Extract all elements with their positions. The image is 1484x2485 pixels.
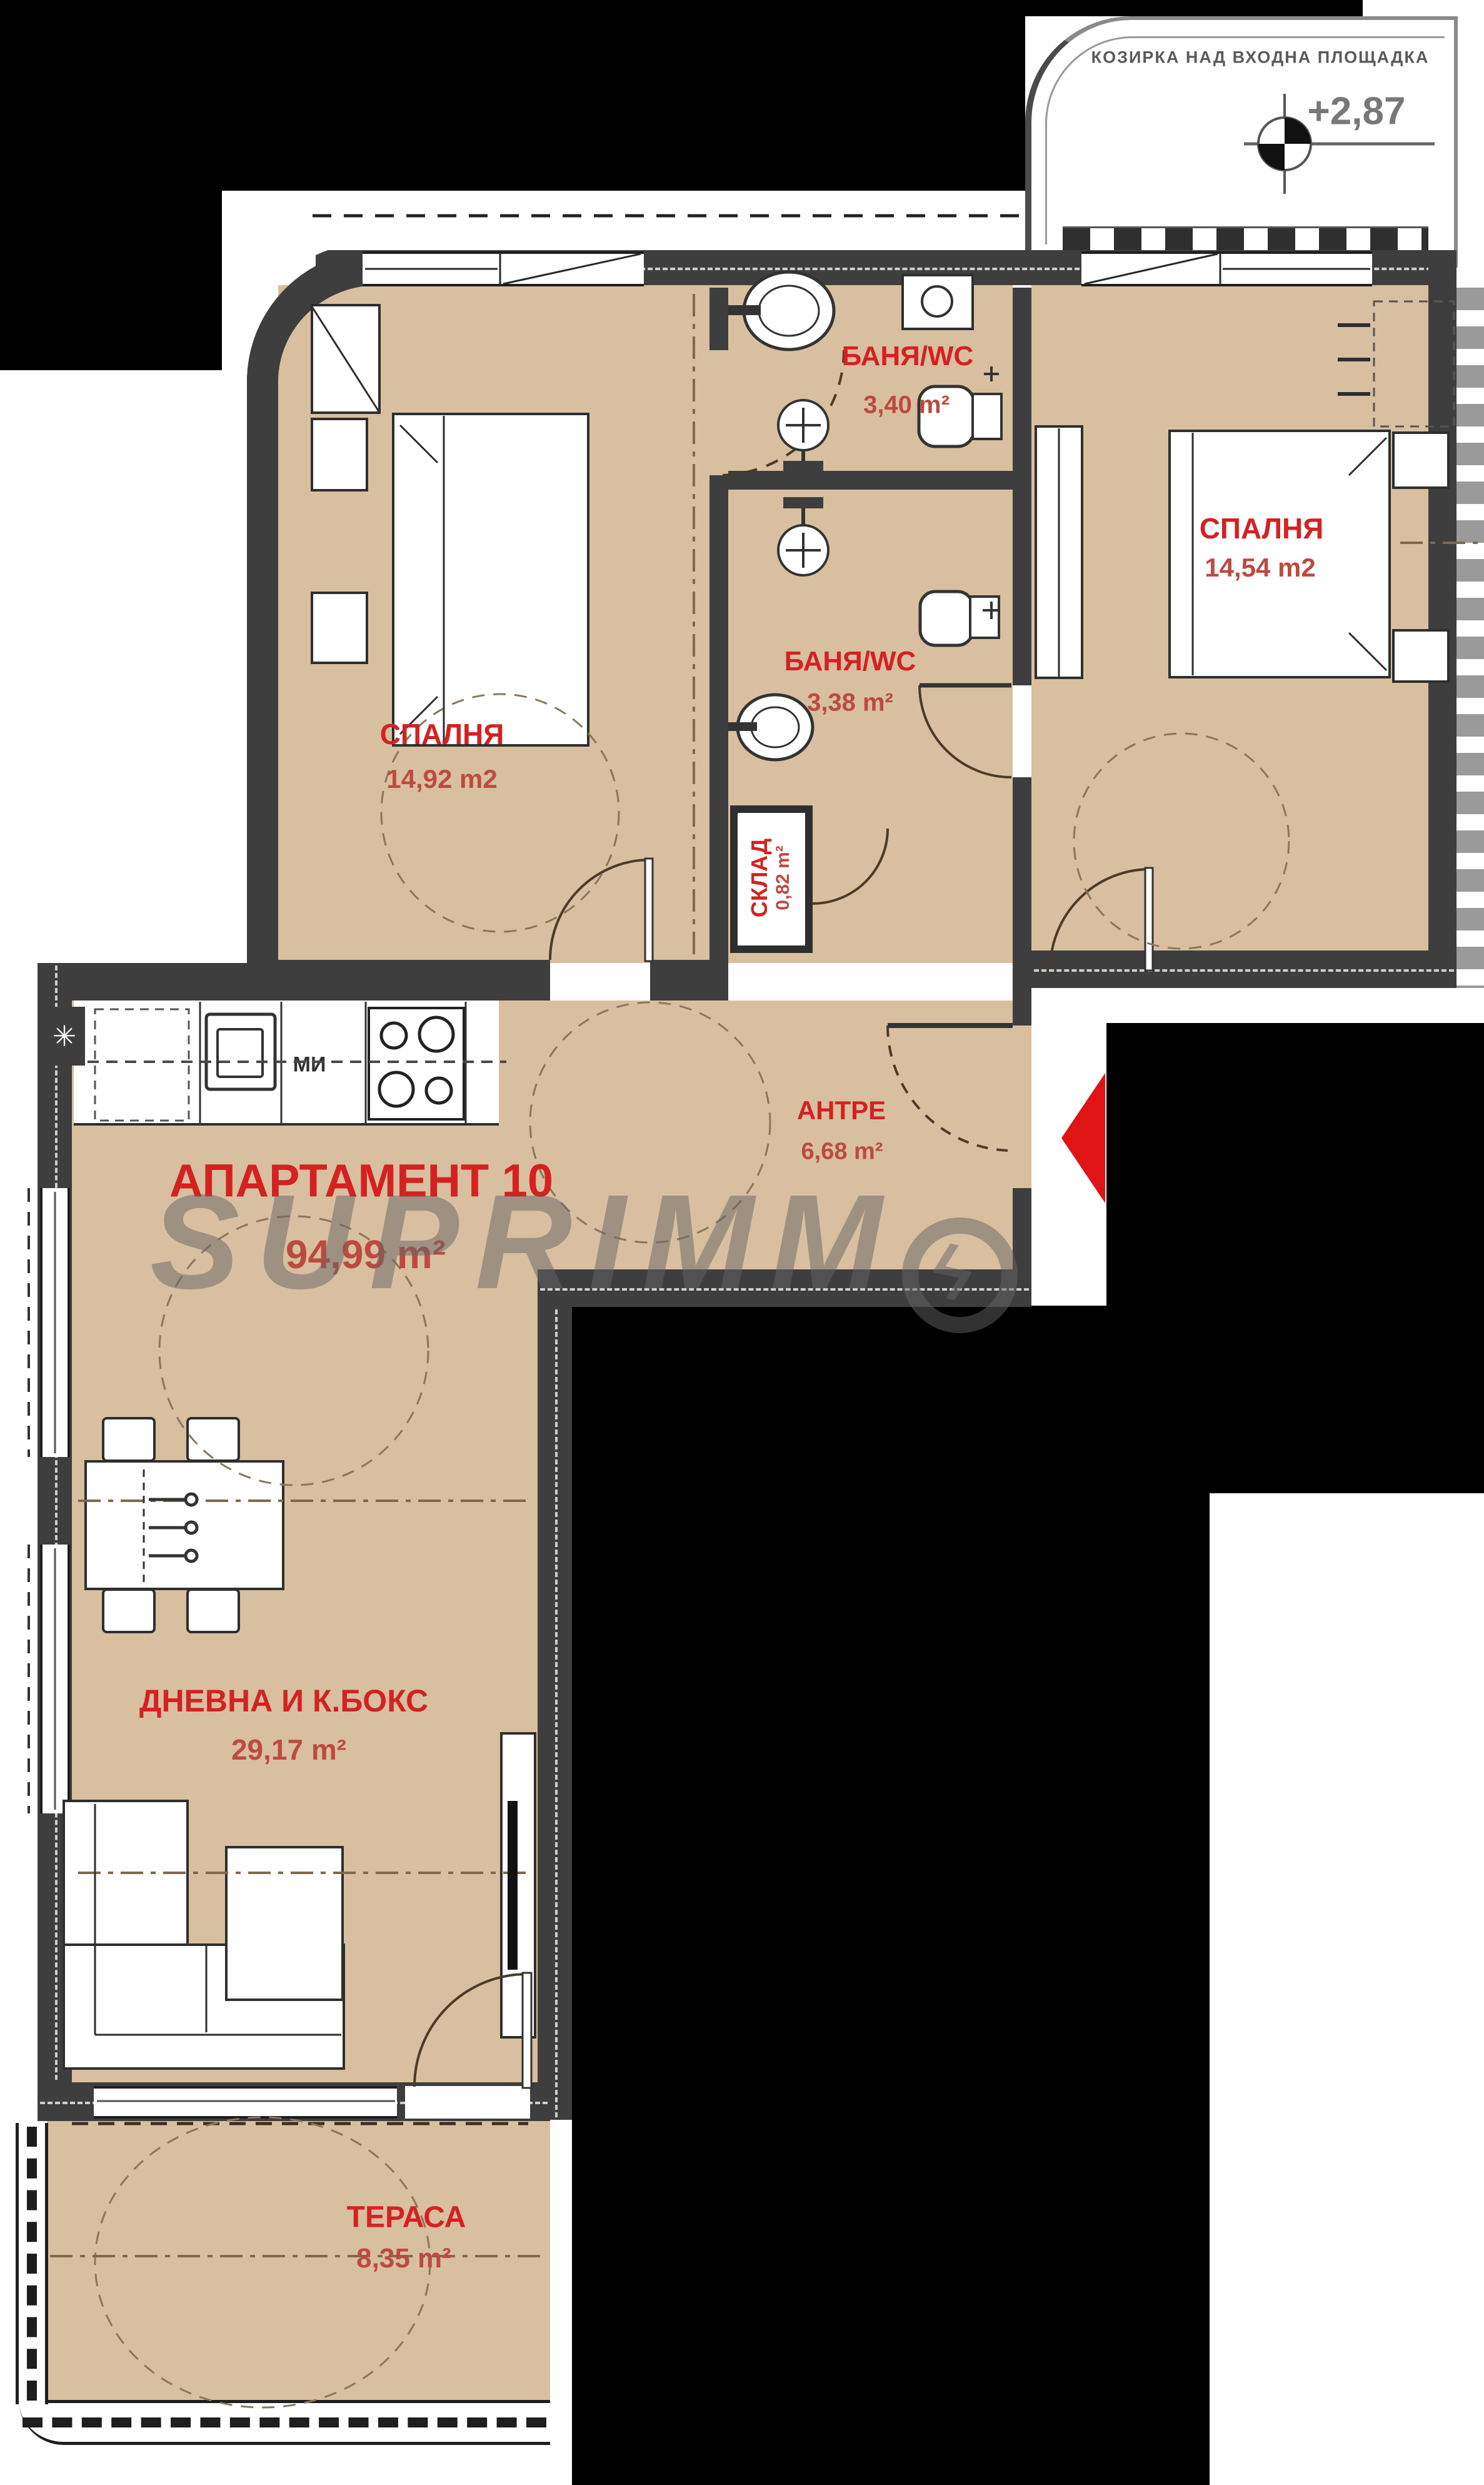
kitchen-counter [74,1001,499,1126]
room-area-living: 29,17 m² [231,1733,346,1767]
room-label-bedroom-left: СПАЛНЯ [380,717,504,751]
background-top-strip [1025,0,1363,16]
wardrobe-right [1035,425,1083,679]
watermark-logo-icon: ϟ [902,1217,1018,1333]
wall-kitchen-top [47,963,247,1001]
room-area-terrace: 8,35 m² [356,2243,451,2274]
wall-right-upper [1428,250,1456,988]
wall-bath-divider [728,471,1013,490]
wall-left-upper [247,375,278,1001]
dishwasher-label: МИ [293,1053,326,1077]
floor-plan: КОЗИРКА НАД ВХОДНА ПЛОЩАДКА +2,87 ✳ МИ [0,0,1484,2485]
bed-left [392,413,589,747]
room-label-hall: АНТРЕ [797,1096,886,1126]
room-label-bath-top: БАНЯ/WC [842,341,974,372]
chair [186,1417,240,1462]
window-living-bottom [94,2086,397,2119]
window-bedroom-left [363,251,644,286]
tv-unit [500,1732,536,2039]
wall-bedroom-left-bottom-a [247,960,550,1001]
wardrobe-left [311,304,381,414]
snowflake-icon: ✳ [53,1019,77,1053]
coffee-table [225,1846,344,2001]
room-area-storage: 0,82 m² [773,839,794,917]
entrance-arrow-icon [1061,1073,1105,1203]
room-label-terrace: ТЕРАСА [347,2200,466,2235]
canopy-label: КОЗИРКА НАД ВХОДНА ПЛОЩАДКА [1091,48,1430,68]
nightstand-left-2 [311,592,368,664]
wall-partition-left-b [709,475,728,960]
nightstand-right-2 [1392,629,1450,683]
watermark: SUPRIMMϟ [150,1164,1018,1333]
wall-partition-right-a [1013,288,1031,685]
room-label-bath-bottom: БАНЯ/WC [785,646,916,677]
window-bedroom-right [1081,251,1372,286]
wall-bedroom-right-bottom [1031,950,1456,988]
wall-partition-right-b [1013,777,1031,988]
nightstand-left-1 [311,418,368,491]
room-label-bedroom-right: СПАЛНЯ [1200,512,1324,545]
wall-right-hatch [1456,288,1484,988]
chair [102,1588,156,1633]
wall-living-right [538,1307,572,2120]
background-left [0,188,222,370]
room-area-bedroom-right: 14,54 m2 [1205,553,1315,583]
nightstand-right-1 [1392,431,1450,489]
room-label-living: ДНЕВНА И К.БОКС [139,1683,428,1719]
room-area-hall: 6,68 m² [801,1139,883,1166]
dining-table [84,1460,284,1590]
terrace-railing-bottom [19,2400,550,2445]
wall-bedroom-left-bottom-b [650,960,728,1001]
wall-partition-left-a [709,288,728,350]
corner-unit-icon: ✳ [44,1007,85,1066]
room-area-bedroom-left: 14,92 m2 [386,764,497,794]
chair [186,1588,240,1633]
window-living-left-2 [40,1545,70,1813]
terrace-door-opening [405,2086,530,2119]
room-area-bath-top: 3,40 m² [863,391,950,420]
floor-terrace [47,2120,550,2407]
building-core-upper [1106,1023,1484,1493]
background-top [0,0,1025,191]
terrace-railing-left [16,2123,48,2404]
elevation-value: +2,87 [1308,89,1406,134]
wall-hall-right-a [1013,988,1031,1026]
washing-machine [901,274,974,330]
canopy-inner-line [1045,36,1445,244]
watermark-text: SUPRIMM [150,1166,898,1317]
window-living-left-1 [40,1188,70,1457]
room-label-storage: СКЛАД [746,839,773,917]
room-label-storage-group: СКЛАД 0,82 m² [746,839,794,917]
room-area-bath-bottom: 3,38 m² [807,689,893,717]
chair [102,1417,156,1462]
